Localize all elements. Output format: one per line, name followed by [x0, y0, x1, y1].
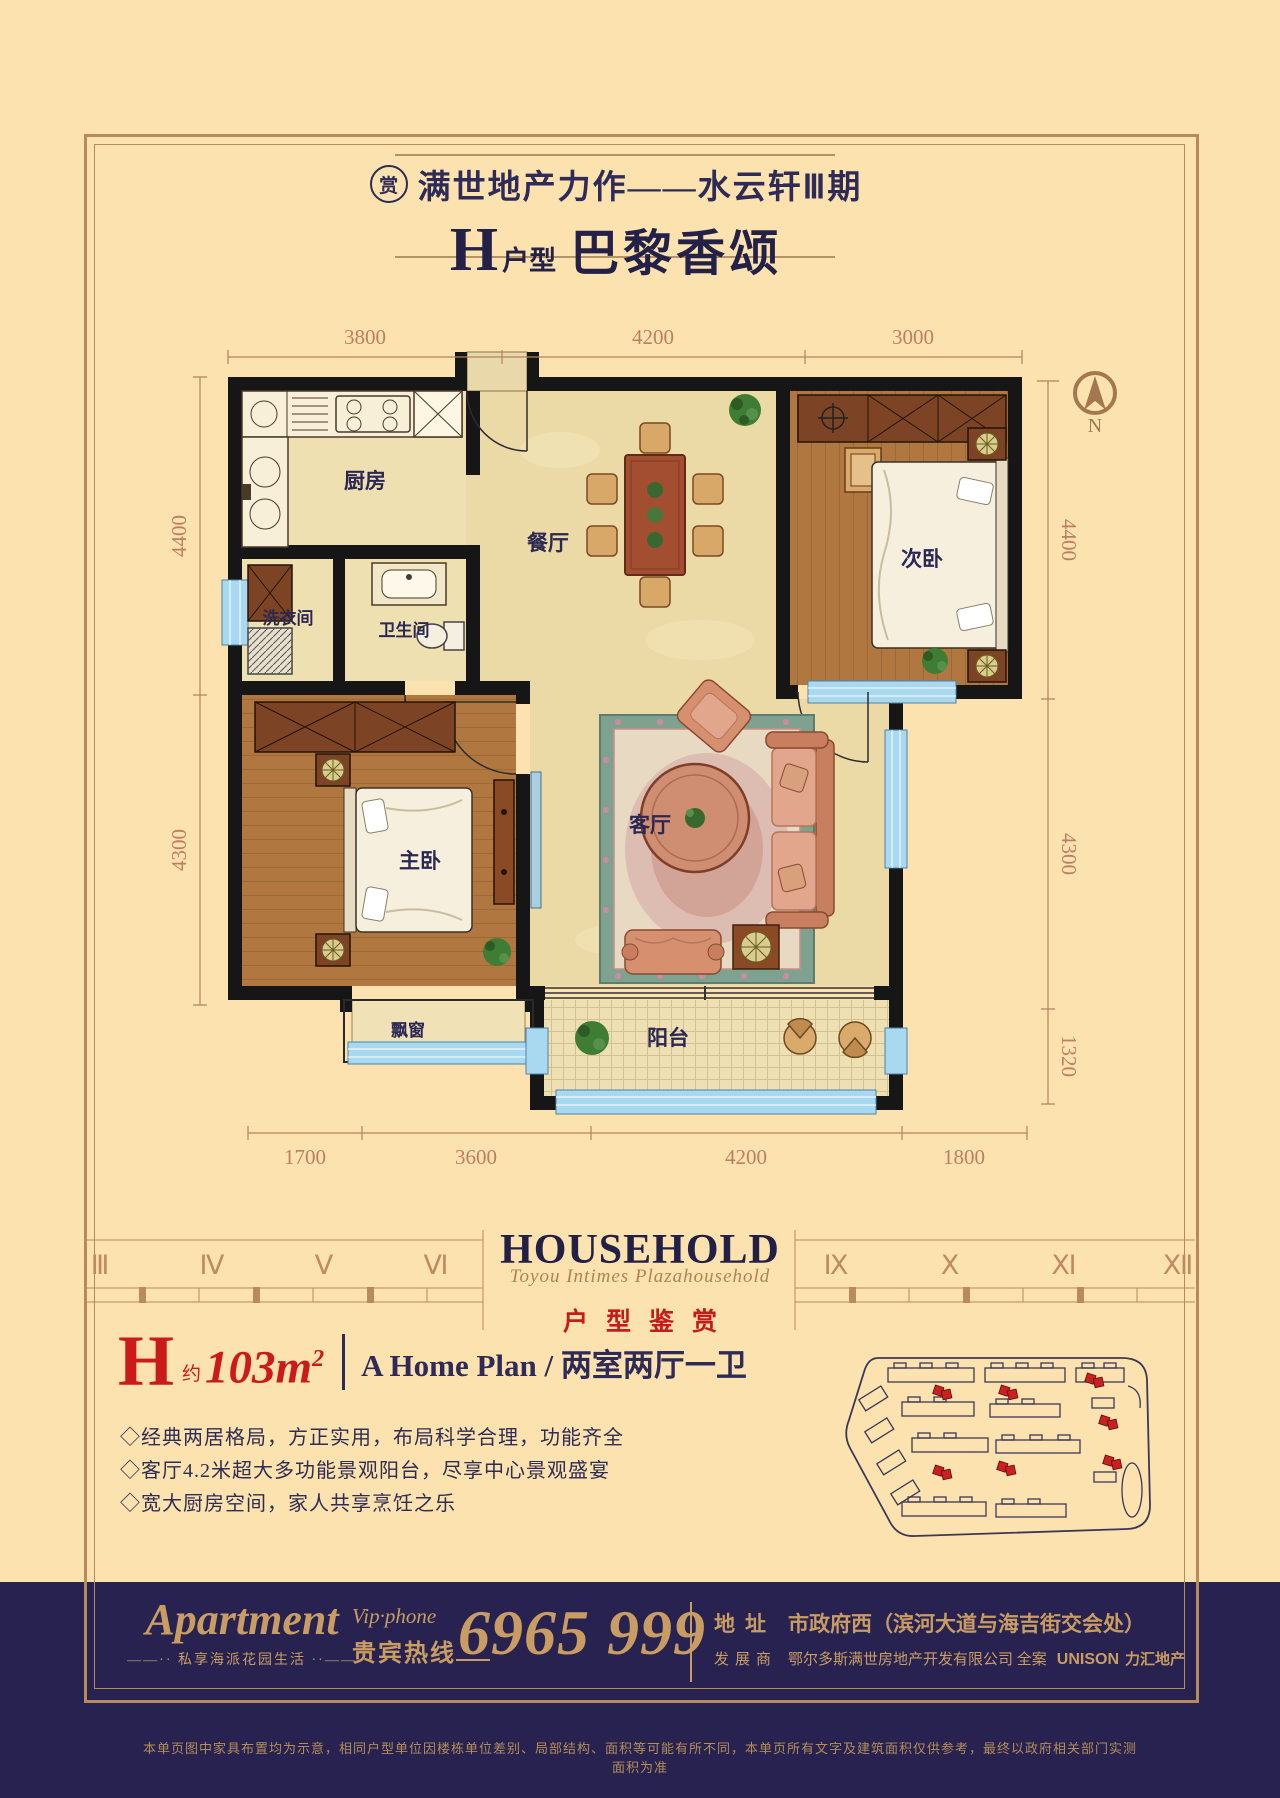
- ruler-roman-9: Ⅸ: [824, 1250, 849, 1280]
- ruler-roman-12: Ⅻ: [1163, 1250, 1194, 1280]
- dim-left-1: 4400: [167, 515, 191, 557]
- dim-top-2: 4200: [632, 325, 674, 349]
- dim-bottom-4: 1800: [943, 1145, 985, 1169]
- project-line: 满世地产力作——水云轩Ⅲ期: [418, 160, 863, 208]
- unit-type-letter: H: [450, 220, 498, 280]
- spec-area-exponent: 2: [312, 1346, 324, 1372]
- room-label-balcony: 阳台: [647, 1026, 689, 1050]
- selling-point: ◇客厅4.2米超大多功能景观阳台，尽享中心景观盛宴: [120, 1455, 624, 1488]
- site-plan: [846, 1358, 1150, 1536]
- dim-right-3: 1320: [1057, 1035, 1081, 1077]
- hotline-text: 贵宾热线: [352, 1641, 456, 1667]
- ruler-roman-10: Ⅹ: [941, 1250, 960, 1280]
- disclaimer: 本单页图中家具布置均为示意，相同户型单位因楼栋单位差别、局部结构、面积等可能有所…: [140, 1738, 1140, 1776]
- sliding-door: [545, 986, 874, 1000]
- developer-value: 鄂尔多斯满世房地产开发有限公司 全案: [788, 1648, 1047, 1669]
- header: 赏 满世地产力作——水云轩Ⅲ期 H 户型 巴黎香颂: [0, 160, 1232, 285]
- dim-bottom-3: 4200: [725, 1145, 767, 1169]
- hotline-number: 6965 999: [458, 1596, 706, 1670]
- ruler-roman-3: Ⅲ: [91, 1250, 110, 1280]
- dim-top-1: 3800: [344, 325, 386, 349]
- apartment-wordmark: Apartment: [122, 1594, 362, 1645]
- room-label-bath: 卫生间: [379, 620, 430, 640]
- selling-point: ◇经典两居格局，方正实用，布局科学合理，功能齐全: [120, 1422, 624, 1455]
- unit-name: 巴黎香颂: [570, 214, 782, 285]
- room-label-master: 主卧: [399, 850, 441, 873]
- address-label: 地址: [714, 1608, 788, 1638]
- dim-left-2: 4300: [167, 829, 191, 871]
- ruler-roman-6: Ⅵ: [424, 1250, 449, 1280]
- developer-label: 发展商: [714, 1648, 788, 1669]
- dim-right-1: 4400: [1057, 519, 1081, 561]
- agency-name: 力汇地产: [1125, 1648, 1185, 1669]
- selling-points: ◇经典两居格局，方正实用，布局科学合理，功能齐全 ◇客厅4.2米超大多功能景观阳…: [120, 1422, 624, 1521]
- footer-divider: [690, 1602, 692, 1682]
- selling-point: ◇宽大厨房空间，家人共享烹饪之乐: [120, 1488, 624, 1521]
- plant-dining: [729, 394, 761, 426]
- dim-bottom-2: 3600: [455, 1145, 497, 1169]
- room-label-bedroom2: 次卧: [901, 547, 943, 571]
- spec-area-value: 103m: [205, 1342, 312, 1394]
- header-subtitle-row: 赏 满世地产力作——水云轩Ⅲ期: [0, 160, 1232, 208]
- spec-letter: H: [118, 1332, 174, 1390]
- address-value: 市政府西（滨河大道与海吉街交会处）: [788, 1608, 1145, 1638]
- dim-right-2: 4300: [1057, 833, 1081, 875]
- brand-block: HOUSEHOLD Toyou Intimes Plazahousehold 户…: [484, 1228, 796, 1338]
- spec-area: 103m2: [205, 1337, 324, 1390]
- page-title: H 户型 巴黎香颂: [0, 214, 1232, 285]
- compass-n: N: [1088, 415, 1102, 437]
- spec-divider: [342, 1334, 345, 1390]
- ruler-roman-4: Ⅳ: [200, 1250, 225, 1280]
- room-label-kitchen: 厨房: [344, 469, 386, 493]
- footer-apartment: Apartment ——·· 私享海派花园生活 ··——: [122, 1594, 362, 1669]
- unison-logo: UNISON: [1057, 1651, 1119, 1669]
- room-label-bay: 飘窗: [391, 1020, 425, 1040]
- room-label-living: 客厅: [629, 813, 671, 837]
- brand-script: Toyou Intimes Plazahousehold: [484, 1266, 796, 1288]
- appreciation-badge: 赏: [370, 165, 408, 203]
- spec-line: H 约 103m2 A Home Plan / 两室两厅一卫: [118, 1332, 747, 1390]
- unit-type-word: 户型: [502, 239, 556, 278]
- developer-row: 发展商 鄂尔多斯满世房地产开发有限公司 全案 UNISON 力汇地产: [714, 1648, 1185, 1669]
- spec-subtitle: A Home Plan / 两室两厅一卫: [361, 1342, 747, 1390]
- ruler-roman-5: Ⅴ: [315, 1250, 334, 1280]
- dim-bottom-1: 1700: [284, 1145, 326, 1169]
- address-row: 地址 市政府西（滨河大道与海吉街交会处）: [714, 1608, 1145, 1638]
- compass-icon: N: [1075, 373, 1115, 437]
- dim-top-3: 3000: [892, 325, 934, 349]
- apartment-tagline: ——·· 私享海派花园生活 ··——: [122, 1649, 362, 1669]
- spec-approx: 约: [182, 1359, 201, 1386]
- room-label-dining: 餐厅: [527, 531, 569, 555]
- ruler-roman-11: Ⅺ: [1051, 1250, 1076, 1280]
- room-label-laundry: 洗衣间: [263, 608, 314, 628]
